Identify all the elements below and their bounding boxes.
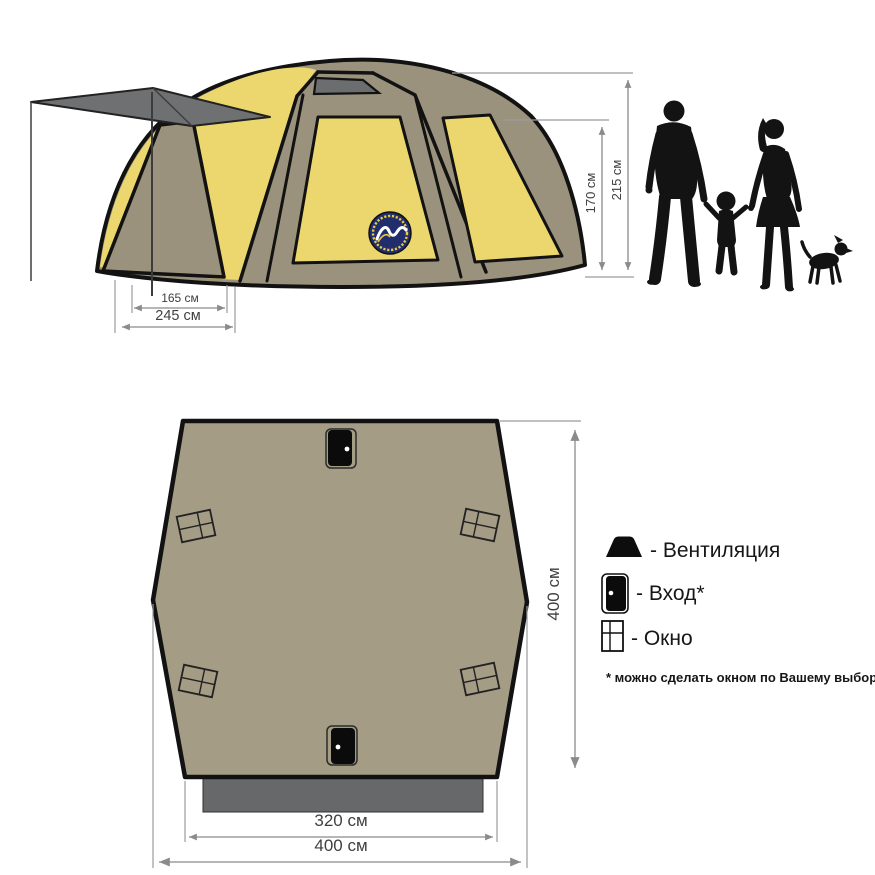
- vent-icon: [606, 537, 642, 558]
- legend-footnote: * можно сделать окном по Вашему выбору: [606, 670, 875, 685]
- vestibule-floor: [203, 777, 483, 812]
- legend-item-entrance: - Вход*: [602, 574, 705, 613]
- dim-label-inner-width: 320 см: [314, 811, 367, 830]
- dim-label-total-height: 215 см: [609, 160, 624, 201]
- legend-label-entrance: - Вход*: [636, 582, 705, 605]
- dim-label-outer-base: 245 см: [155, 308, 200, 324]
- legend-label-window: - Окно: [631, 627, 693, 650]
- legend-item-window: - Окно: [602, 621, 693, 651]
- tent-floor-plan: [153, 421, 527, 812]
- family-silhouette: [646, 101, 854, 292]
- dim-label-outer-width: 400 см: [314, 836, 367, 855]
- plan-door-top: [326, 429, 356, 468]
- dim-label-wall-height: 170 см: [583, 173, 598, 214]
- woman-figure: [748, 118, 800, 291]
- plan-door-bottom: [327, 726, 357, 765]
- man-figure: [646, 101, 705, 287]
- plan-outline: [153, 421, 527, 777]
- dog-figure: [802, 235, 853, 283]
- legend-item-ventilation: - Вентиляция: [606, 537, 780, 563]
- window-icon: [602, 621, 623, 651]
- door-icon: [602, 574, 628, 613]
- child-figure: [706, 192, 746, 273]
- legend-label-ventilation: - Вентиляция: [650, 539, 780, 562]
- tent-side-view: [31, 60, 585, 296]
- tent-seam-apex-top: [318, 72, 373, 73]
- tent-spec-diagram: 170 см 215 см 165 см 245 см: [0, 0, 875, 875]
- dim-label-inner-base: 165 см: [161, 291, 199, 305]
- brand-logo: [369, 212, 411, 254]
- dim-label-depth: 400 см: [544, 567, 563, 620]
- legend: - Вентиляция - Вход* - Окно * можно сдел…: [602, 537, 875, 686]
- diagram-canvas: 170 см 215 см 165 см 245 см: [0, 0, 875, 875]
- door-handle-dot: [345, 447, 350, 452]
- door-handle-dot: [336, 745, 341, 750]
